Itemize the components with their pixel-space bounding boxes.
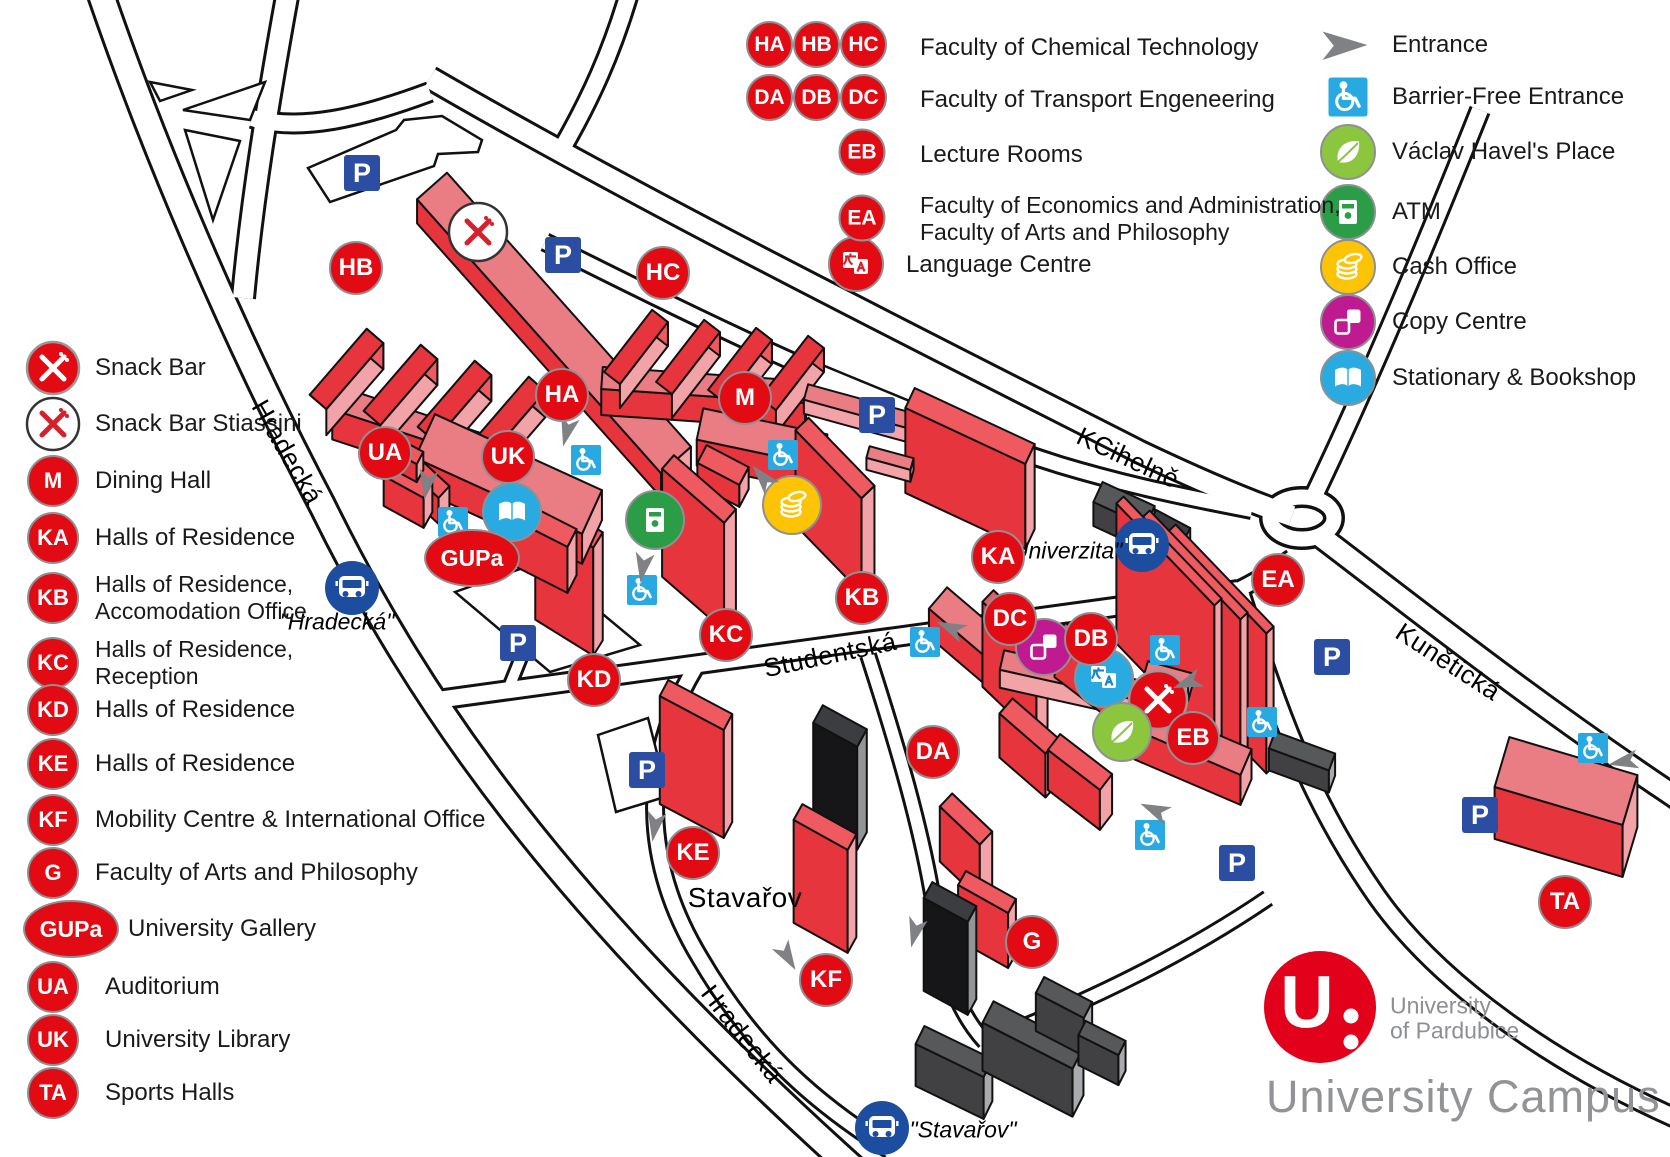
badge-gupa[interactable]: GUPa <box>424 529 520 587</box>
legend-kd-label: Halls of Residence <box>95 696 295 724</box>
legend-badge-eb: EB <box>839 129 886 176</box>
badge-eb[interactable]: EB <box>1166 711 1220 765</box>
legend-kc-line2: Reception <box>95 663 293 690</box>
legend-snack-bar-icon <box>27 342 79 394</box>
legend-ke-label: Halls of Residence <box>95 750 295 778</box>
badge-ua[interactable]: UA <box>358 426 412 480</box>
parking-sign[interactable]: P <box>344 155 380 191</box>
legend-badge-hc: HC <box>840 21 887 68</box>
legend-barrier-free-label: Barrier-Free Entrance <box>1392 83 1624 111</box>
legend-kf-label: Mobility Centre & International Office <box>95 806 485 834</box>
badge-dc[interactable]: DC <box>983 592 1037 646</box>
legend-economics-line1: Faculty of Economics and Administration, <box>920 192 1341 219</box>
barrier-free-entrance-icon[interactable] <box>1247 707 1277 737</box>
parking-sign[interactable]: P <box>1314 639 1350 675</box>
legend-ta-label: Sports Halls <box>105 1079 234 1107</box>
legend-copy-centre-icon <box>1321 295 1375 349</box>
legend-badge-g: G <box>27 847 79 899</box>
legend-dining-hall-label: Dining Hall <box>95 467 211 495</box>
legend-atm-label: ATM <box>1392 198 1441 226</box>
bus-stop-stavarov-icon[interactable] <box>855 1101 909 1155</box>
legend-snack-bar-stiassini-icon <box>27 398 79 450</box>
legend-g-label: Faculty of Arts and Philosophy <box>95 859 418 887</box>
legend-badge-hb: HB <box>793 21 840 68</box>
bus-stop-univerzita-icon[interactable] <box>1115 518 1169 572</box>
legend-row-chemical-badges: HA HB HC <box>746 21 887 68</box>
legend-gupa-label: University Gallery <box>128 915 316 943</box>
legend-badge-dc: DC <box>840 74 887 121</box>
badge-uk[interactable]: UK <box>481 430 535 484</box>
legend-kb-label: Halls of Residence, Accomodation Office <box>95 571 307 625</box>
parking-sign[interactable]: P <box>1462 797 1498 833</box>
gray-building[interactable] <box>1269 732 1335 793</box>
campus-map-page: HB HC HA M UA UK GUPa KA KB KC KD DC DB … <box>0 0 1670 1157</box>
badge-kc[interactable]: KC <box>699 608 753 662</box>
legend-badge-ke: KE <box>27 738 79 790</box>
barrier-free-entrance-icon[interactable] <box>1135 820 1165 850</box>
legend-lecture-rooms-label: Lecture Rooms <box>920 141 1083 169</box>
bus-stop-hradecka-icon[interactable] <box>325 561 379 615</box>
barrier-free-entrance-icon[interactable] <box>910 627 940 657</box>
legend-badge-uk: UK <box>27 1014 79 1066</box>
badge-g[interactable]: G <box>1005 915 1059 969</box>
badge-ha[interactable]: HA <box>535 368 589 422</box>
legend-language-centre-label: Language Centre <box>906 251 1091 279</box>
legend-badge-kb: KB <box>27 572 79 624</box>
place-label-stavarov: Stavařov <box>688 882 803 914</box>
logo-org-line2: of Pardubice <box>1390 1019 1519 1044</box>
legend-copy-centre-label: Copy Centre <box>1392 308 1527 336</box>
legend-kb-line1: Halls of Residence, <box>95 571 307 598</box>
legend-badge-m: M <box>27 455 79 507</box>
badge-da[interactable]: DA <box>906 725 960 779</box>
badge-ke[interactable]: KE <box>666 826 720 880</box>
badge-hc[interactable]: HC <box>636 246 690 300</box>
vaclav-havel-place-icon[interactable] <box>1093 703 1151 761</box>
legend-badge-ha: HA <box>746 21 793 68</box>
legend-bookshop-label: Stationary & Bookshop <box>1392 364 1636 392</box>
legend-badge-kd: KD <box>27 684 79 736</box>
badge-hb[interactable]: HB <box>329 241 383 295</box>
badge-ta[interactable]: TA <box>1538 875 1592 929</box>
legend-snack-bar-label: Snack Bar <box>95 354 206 382</box>
badge-db[interactable]: DB <box>1064 612 1118 666</box>
legend-language-centre-icon <box>829 237 883 291</box>
parking-sign[interactable]: P <box>629 752 665 788</box>
legend-economics-line2: Faculty of Arts and Philosophy <box>920 219 1341 246</box>
badge-kb[interactable]: KB <box>835 571 889 625</box>
bus-stop-label-stavarov: "Stavařov" <box>909 1117 1016 1144</box>
legend-kb-line2: Accomodation Office <box>95 598 307 625</box>
parking-sign[interactable]: P <box>859 397 895 433</box>
legend-badge-kf: KF <box>27 794 79 846</box>
badge-kd[interactable]: KD <box>567 653 621 707</box>
legend-entrance-icon <box>1323 32 1368 61</box>
building-ka[interactable] <box>905 388 1034 549</box>
logo-org-line1: University <box>1390 994 1491 1019</box>
legend-snack-bar-stiassini-label: Snack Bar Stiassini <box>95 410 302 438</box>
legend-badge-da: DA <box>746 74 793 121</box>
legend-ua-label: Auditorium <box>105 973 220 1001</box>
legend-bookshop-icon <box>1321 351 1375 405</box>
legend-badge-ua: UA <box>27 961 79 1013</box>
legend-entrance-label: Entrance <box>1392 31 1488 59</box>
badge-ea[interactable]: EA <box>1251 553 1305 607</box>
barrier-free-entrance-icon[interactable] <box>768 440 798 470</box>
cash-office-icon[interactable] <box>763 476 821 534</box>
gray-building[interactable] <box>1078 1021 1125 1085</box>
badge-ka[interactable]: KA <box>971 530 1025 584</box>
snack-bar-stiassini-icon[interactable] <box>449 203 507 261</box>
badge-kf[interactable]: KF <box>799 953 853 1007</box>
legend-badge-ea: EA <box>839 195 886 242</box>
legend-row-transport-badges: DA DB DC <box>746 74 887 121</box>
atm-icon[interactable] <box>626 491 684 549</box>
legend-uk-label: University Library <box>105 1026 290 1054</box>
legend-chemical-label: Faculty of Chemical Technology <box>920 34 1258 62</box>
legend-badge-gupa: GUPa <box>23 900 119 958</box>
university-logo-letter: U <box>1280 960 1333 1045</box>
legend-kc-label: Halls of Residence, Reception <box>95 636 293 690</box>
barrier-free-entrance-icon[interactable] <box>1150 635 1180 665</box>
entrance-icon <box>772 940 803 975</box>
legend-economics-label: Faculty of Economics and Administration,… <box>920 192 1341 246</box>
page-title: University Campus <box>1266 1071 1661 1123</box>
legend-vaclav-havel-icon <box>1321 125 1375 179</box>
parking-sign[interactable]: P <box>545 237 581 273</box>
legend-badge-kc: KC <box>27 637 79 689</box>
legend-badge-ka: KA <box>27 512 79 564</box>
black-building[interactable] <box>924 882 977 1015</box>
legend-cash-office-icon <box>1321 240 1375 294</box>
barrier-free-entrance-icon[interactable] <box>1578 733 1608 763</box>
legend-badge-ta: TA <box>27 1067 79 1119</box>
legend-vaclav-havel-label: Václav Havel's Place <box>1392 138 1615 166</box>
barrier-free-entrance-icon[interactable] <box>571 445 601 475</box>
legend-cash-office-label: Cash Office <box>1392 253 1517 281</box>
legend-kc-line1: Halls of Residence, <box>95 636 293 663</box>
parking-sign[interactable]: P <box>1219 845 1255 881</box>
legend-transport-label: Faculty of Transport Engeneering <box>920 86 1275 114</box>
badge-m[interactable]: M <box>718 371 772 425</box>
parking-sign[interactable]: P <box>500 625 536 661</box>
legend-ka-label: Halls of Residence <box>95 524 295 552</box>
legend-badge-db: DB <box>793 74 840 121</box>
building-ke[interactable] <box>660 680 732 838</box>
legend-barrier-free-icon <box>1329 78 1368 117</box>
